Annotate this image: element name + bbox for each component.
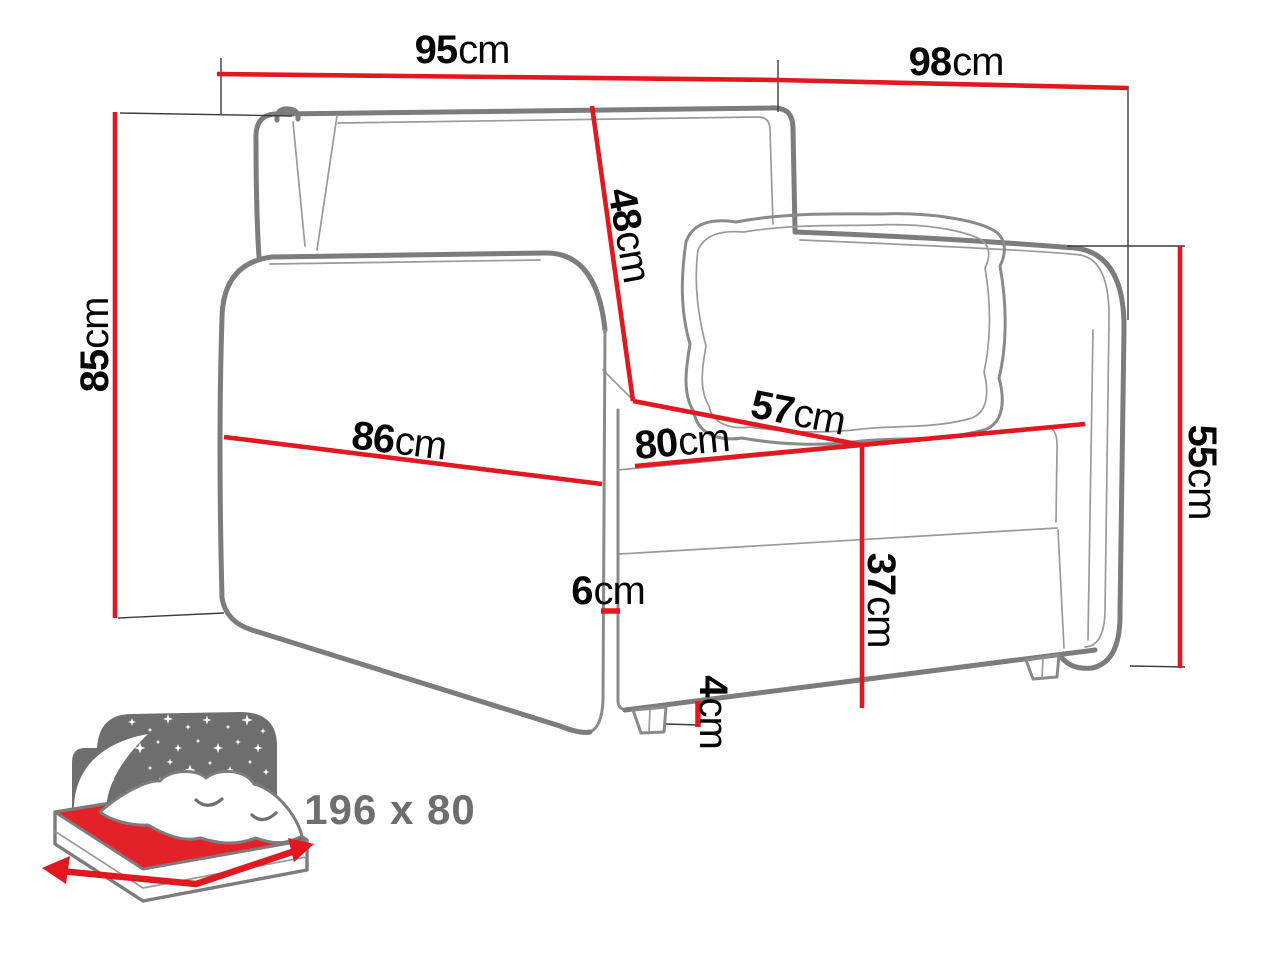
dimension-label-base-height: 37cm xyxy=(861,553,901,648)
dimension-label-leg-height: 4cm xyxy=(693,675,733,749)
dimension-line-95cm xyxy=(217,74,778,80)
dimension-label-back-width: 95cm xyxy=(415,30,510,70)
left-armrest xyxy=(220,253,625,732)
dimension-label-armrest-height: 55cm xyxy=(1182,425,1222,520)
diagram-canvas: 95cm 98cm 48cm 85cm 86cm 80cm 57cm 55cm … xyxy=(0,0,1280,960)
bed-icon xyxy=(42,712,314,901)
front-right-leg xyxy=(1026,655,1059,679)
extension-lines xyxy=(118,58,1185,725)
dimension-label-front-width: 86cm xyxy=(350,415,449,466)
arrow-head-left xyxy=(42,856,70,884)
dimension-label-armrest-gap: 6cm xyxy=(571,571,645,611)
dimension-label-seat-width: 80cm xyxy=(633,418,731,466)
dimension-label-total-width: 98cm xyxy=(909,42,1004,82)
right-armrest xyxy=(795,232,1124,668)
dimension-lines xyxy=(115,74,1180,727)
dimension-label-total-height: 85cm xyxy=(75,298,115,393)
armchair-dimension-drawing xyxy=(0,0,1280,960)
front-left-leg xyxy=(633,707,666,733)
sleeping-area-label: 196 x 80 xyxy=(304,789,476,831)
